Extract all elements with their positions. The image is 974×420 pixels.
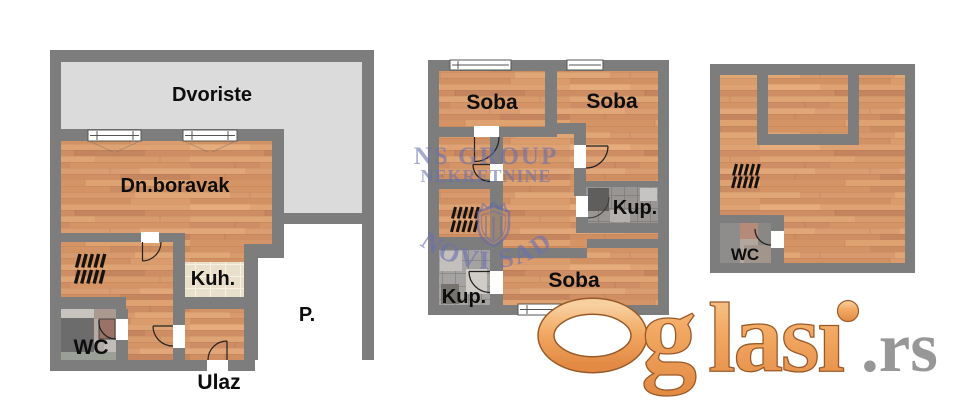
svg-text:NEKRETNINE: NEKRETNINE: [420, 166, 551, 186]
svg-text:Ulaz: Ulaz: [197, 371, 240, 394]
svg-text:Soba: Soba: [586, 90, 638, 113]
svg-text:Soba: Soba: [466, 91, 518, 114]
svg-text:Dn.boravak: Dn.boravak: [121, 175, 231, 197]
svg-text:g: g: [641, 272, 697, 396]
svg-text:P.: P.: [299, 304, 315, 326]
svg-text:Dvoriste: Dvoriste: [172, 84, 252, 106]
svg-text:Soba: Soba: [548, 269, 600, 292]
svg-text:.rs: .rs: [861, 309, 938, 387]
svg-text:WC: WC: [731, 245, 759, 264]
svg-text:Kuh.: Kuh.: [191, 268, 235, 290]
svg-text:Kup.: Kup.: [442, 286, 486, 308]
svg-text:Kup.: Kup.: [613, 197, 657, 219]
svg-text:WC: WC: [74, 336, 109, 359]
